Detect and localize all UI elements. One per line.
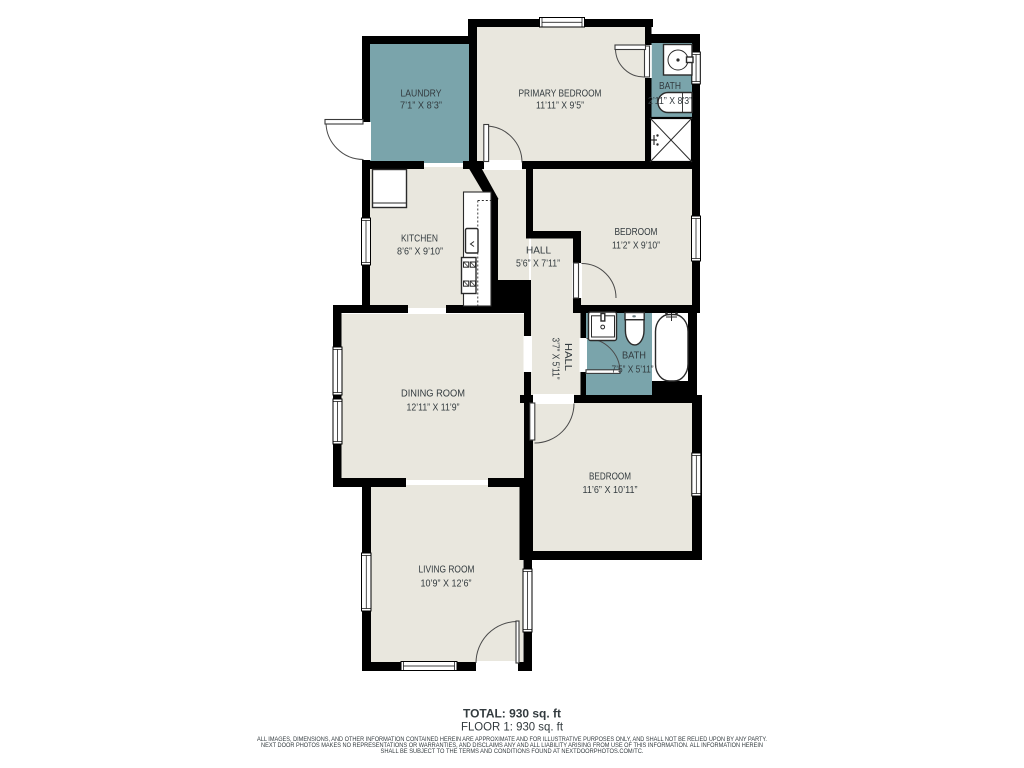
svg-text:5’6” X 7’11”: 5’6” X 7’11”	[516, 258, 560, 270]
svg-text:11’6” X 10’11”: 11’6” X 10’11”	[583, 484, 638, 496]
svg-text:SHALL BE SUBJECT TO THE TERMS: SHALL BE SUBJECT TO THE TERMS AND CONDIT…	[381, 748, 644, 755]
svg-text:DINING ROOM: DINING ROOM	[401, 388, 465, 400]
svg-text:2’11” X 8’3”: 2’11” X 8’3”	[648, 95, 692, 107]
svg-text:HALL: HALL	[526, 245, 551, 257]
svg-text:12’11” X 11’9”: 12’11” X 11’9”	[407, 402, 460, 414]
svg-text:LIVING ROOM: LIVING ROOM	[419, 564, 475, 576]
svg-text:BEDROOM: BEDROOM	[615, 226, 658, 238]
svg-text:11’11” X 9’5”: 11’11” X 9’5”	[536, 100, 584, 112]
svg-text:PRIMARY BEDROOM: PRIMARY BEDROOM	[519, 88, 602, 100]
svg-text:3’7” X 5’11”: 3’7” X 5’11”	[550, 338, 562, 380]
svg-text:TOTAL: 930 sq. ft: TOTAL: 930 sq. ft	[463, 707, 561, 721]
svg-text:11’2” X 9’10”: 11’2” X 9’10”	[612, 240, 660, 252]
svg-text:BATH: BATH	[622, 350, 646, 362]
svg-text:KITCHEN: KITCHEN	[401, 233, 438, 245]
svg-text:FLOOR 1: 930 sq. ft: FLOOR 1: 930 sq. ft	[461, 721, 564, 734]
svg-text:7’5” X 5’11”: 7’5” X 5’11”	[612, 364, 654, 376]
svg-text:LAUNDRY: LAUNDRY	[401, 88, 442, 100]
svg-text:HALL: HALL	[562, 343, 574, 371]
svg-text:8’6” X 9’10”: 8’6” X 9’10”	[397, 246, 443, 258]
svg-text:7’1” X 8’3”: 7’1” X 8’3”	[400, 100, 442, 112]
svg-text:BATH: BATH	[659, 80, 681, 92]
svg-text:BEDROOM: BEDROOM	[589, 471, 631, 483]
svg-text:10’9” X 12’6”: 10’9” X 12’6”	[421, 578, 472, 590]
